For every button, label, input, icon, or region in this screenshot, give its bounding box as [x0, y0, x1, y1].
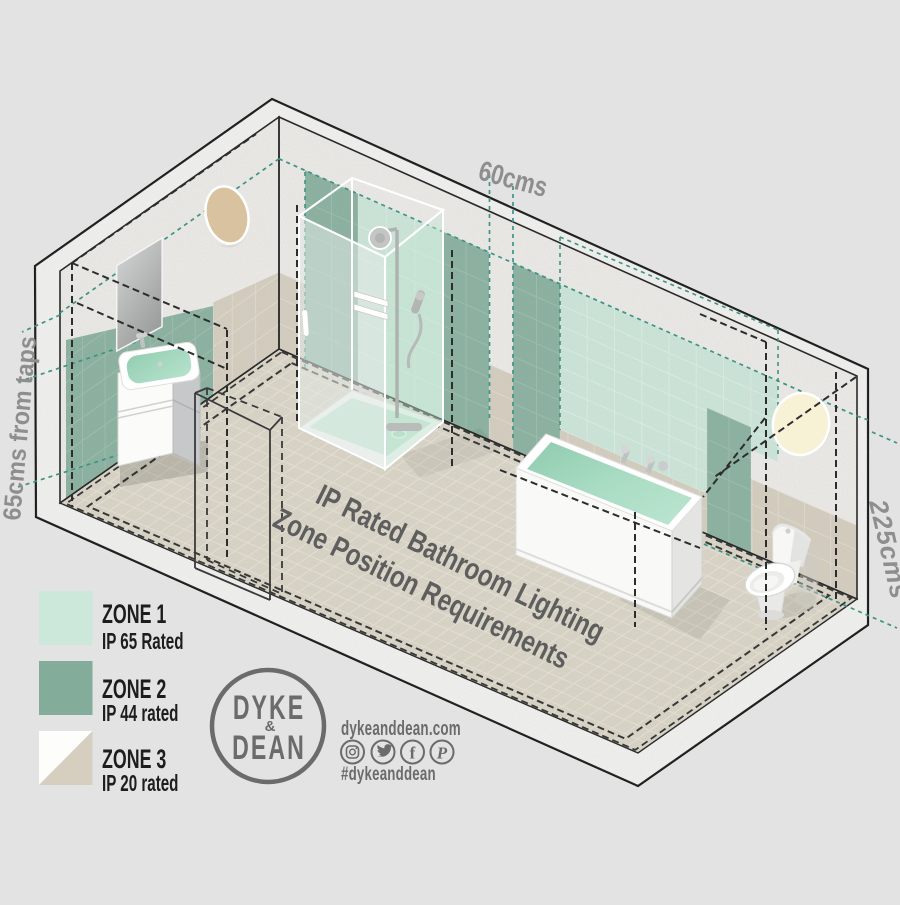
svg-text:P: P [436, 744, 448, 763]
svg-text:DEAN: DEAN [232, 730, 306, 767]
svg-text:IP 65 Rated: IP 65 Rated [102, 629, 183, 655]
svg-text:#dykeanddean: #dykeanddean [341, 764, 436, 785]
svg-text:IP 44 rated: IP 44 rated [102, 701, 178, 727]
svg-text:ZONE 2: ZONE 2 [102, 673, 166, 704]
svg-text:f: f [410, 744, 416, 763]
svg-text:dykeanddean.com: dykeanddean.com [341, 717, 461, 739]
svg-text:IP 20 rated: IP 20 rated [102, 771, 178, 797]
svg-text:ZONE 3: ZONE 3 [102, 743, 166, 774]
svg-text:ZONE 1: ZONE 1 [102, 598, 167, 629]
